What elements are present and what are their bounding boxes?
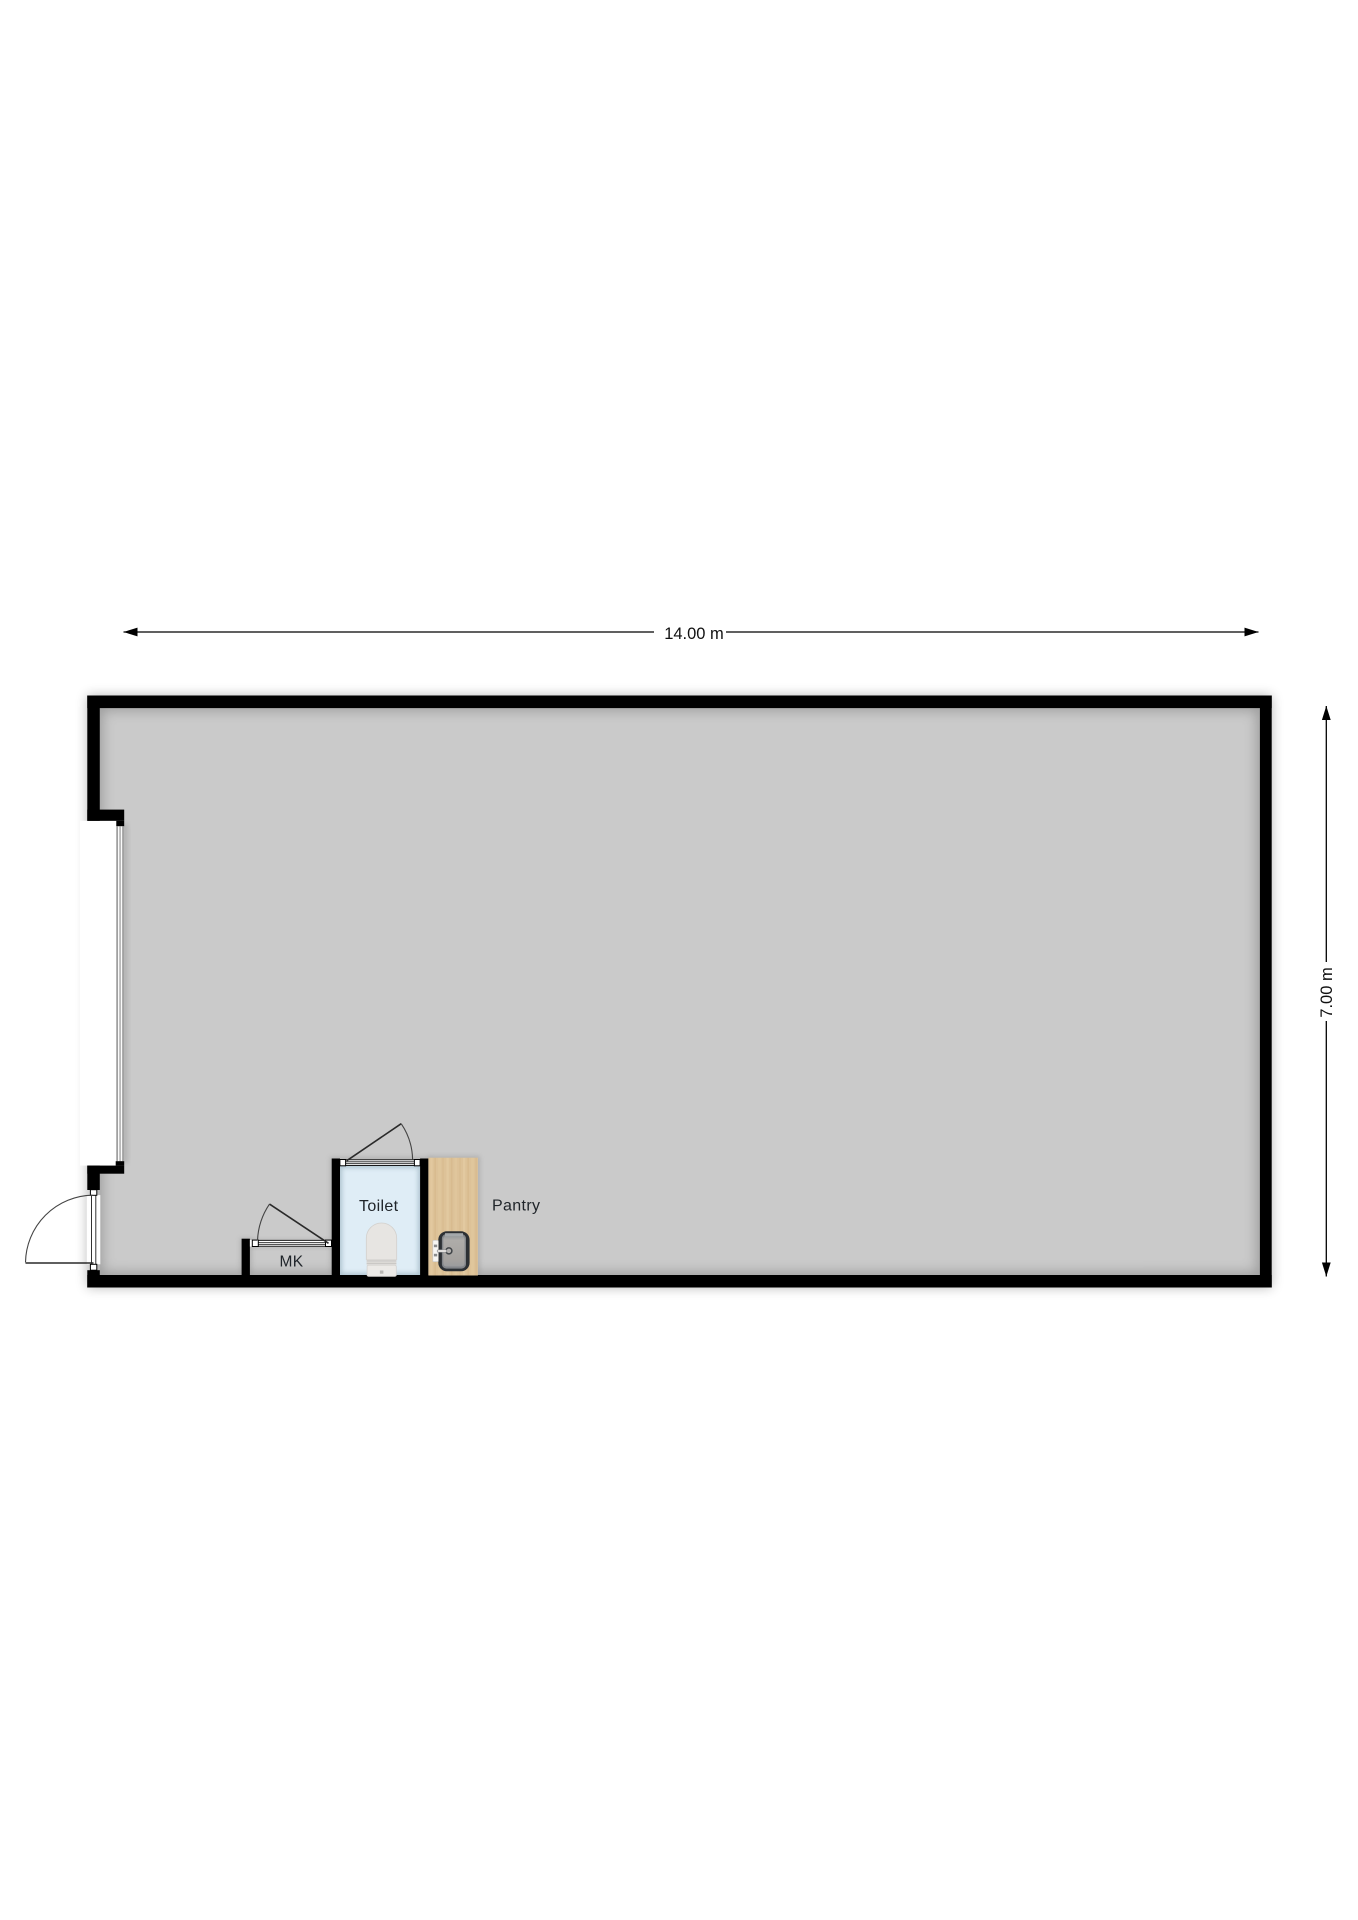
svg-text:7.00 m: 7.00 m [1318, 967, 1336, 1017]
svg-text:Toilet: Toilet [359, 1198, 399, 1215]
svg-text:Pantry: Pantry [492, 1198, 540, 1215]
svg-text:MK: MK [280, 1254, 304, 1271]
svg-text:14.00 m: 14.00 m [664, 625, 724, 643]
